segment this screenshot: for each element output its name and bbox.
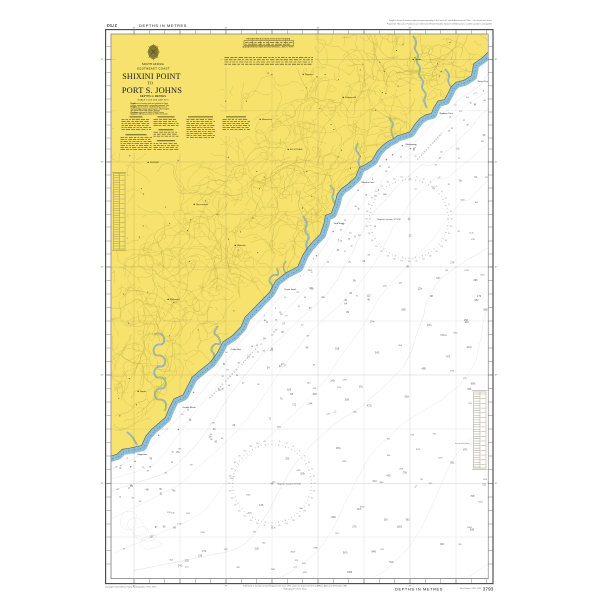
svg-text:260: 260 <box>229 491 232 493</box>
svg-text:150: 150 <box>429 256 432 258</box>
svg-text:290: 290 <box>231 469 234 471</box>
svg-text:200: 200 <box>256 523 259 525</box>
svg-text:298: 298 <box>473 279 478 282</box>
svg-text:1476: 1476 <box>464 270 468 272</box>
svg-text:708: 708 <box>470 495 475 498</box>
svg-text:2205: 2205 <box>201 532 206 534</box>
svg-text:160: 160 <box>285 523 288 525</box>
svg-text:603: 603 <box>405 395 410 398</box>
svg-text:350: 350 <box>400 177 403 179</box>
svg-text:Copyright South African Navy H: Copyright South African Navy Hydrographi… <box>105 586 157 589</box>
svg-text:629: 629 <box>481 141 484 143</box>
svg-text:340: 340 <box>393 179 396 181</box>
svg-text:50: 50 <box>441 191 443 193</box>
svg-text:32°: 32° <box>101 162 104 164</box>
svg-text:Nqadu: Nqadu <box>140 391 147 393</box>
svg-text:2701: 2701 <box>427 325 432 327</box>
svg-text:173: 173 <box>202 549 207 553</box>
svg-text:137: 137 <box>436 277 441 280</box>
svg-text:Published at Taunton, United K: Published at Taunton, United Kingdom 25t… <box>243 585 348 588</box>
svg-text:32°: 32° <box>495 59 498 61</box>
svg-text:1502: 1502 <box>478 501 484 503</box>
svg-text:30: 30 <box>292 446 294 448</box>
svg-text:Depths shown in metres reduced: Depths shown in metres reduced approxima… <box>389 19 492 22</box>
svg-text:330: 330 <box>386 182 389 184</box>
svg-text:60: 60 <box>445 197 447 199</box>
svg-text:10: 10 <box>279 441 281 443</box>
svg-text:5287: 5287 <box>342 461 346 463</box>
svg-text:THE MARITIME BUOYAGE SYSTEM IN: THE MARITIME BUOYAGE SYSTEM IN THIS AREA <box>246 38 291 41</box>
svg-text:140: 140 <box>435 251 438 253</box>
svg-text:200: 200 <box>393 259 396 261</box>
svg-text:32°: 32° <box>495 483 498 485</box>
svg-text:1106: 1106 <box>460 200 464 202</box>
svg-text:220: 220 <box>380 251 383 253</box>
svg-text:220: 220 <box>243 516 246 518</box>
svg-text:18: 18 <box>298 306 300 308</box>
svg-text:20: 20 <box>286 443 288 445</box>
svg-text:Libode: Libode <box>415 59 422 61</box>
svg-text:1027: 1027 <box>303 572 309 574</box>
svg-text:10: 10 <box>357 190 359 192</box>
svg-text:6: 6 <box>264 315 265 317</box>
svg-text:1372: 1372 <box>342 380 347 382</box>
svg-text:Shixini Point: Shixini Point <box>478 80 490 83</box>
svg-text:250: 250 <box>368 233 371 235</box>
svg-text:597: 597 <box>190 465 193 467</box>
svg-text:310: 310 <box>375 191 378 193</box>
svg-text:270: 270 <box>228 483 231 485</box>
svg-text:120: 120 <box>445 240 448 242</box>
svg-text:Umtata Mouth: Umtata Mouth <box>183 406 197 409</box>
svg-text:Rame Head: Rame Head <box>285 289 297 291</box>
svg-text:Hydrographer of the Navy: Hydrographer of the Navy <box>284 587 307 590</box>
svg-text:DEPTHS IN METRES: DEPTHS IN METRES <box>395 586 443 591</box>
svg-text:SOUTHEAST COAST: SOUTHEAST COAST <box>137 66 170 70</box>
svg-text:ELLIOTDALE: ELLIOTDALE <box>290 148 303 151</box>
svg-text:1427: 1427 <box>186 513 190 515</box>
svg-text:485: 485 <box>422 367 427 371</box>
svg-text:230: 230 <box>255 548 260 551</box>
svg-text:Projection: Mercator. Position: Projection: Mercator. Positions are refe… <box>387 22 493 25</box>
svg-text:2405: 2405 <box>453 333 458 335</box>
svg-text:1716: 1716 <box>177 524 181 526</box>
svg-text:130: 130 <box>440 246 443 248</box>
svg-text:286: 286 <box>483 308 488 311</box>
svg-text:15: 15 <box>284 297 286 299</box>
svg-text:Sources: SA Navy surveys to 19: Sources: SA Navy surveys to 1977 and ear… <box>131 113 169 116</box>
svg-text:190: 190 <box>263 525 266 527</box>
svg-text:9: 9 <box>167 429 168 431</box>
svg-text:839: 839 <box>470 529 475 532</box>
svg-text:Willowvale: Willowvale <box>170 299 181 301</box>
svg-text:109: 109 <box>287 389 292 392</box>
svg-text:32°: 32° <box>101 59 104 61</box>
svg-text:29°: 29° <box>409 585 412 587</box>
svg-text:IALA MARITIME BUOYAGE SYSTEM R: IALA MARITIME BUOYAGE SYSTEM REGION A — … <box>243 45 294 48</box>
svg-text:340: 340 <box>256 443 259 445</box>
svg-text:22: 22 <box>222 376 224 378</box>
svg-text:7079: 7079 <box>438 458 443 460</box>
svg-text:20: 20 <box>423 179 425 181</box>
svg-text:210: 210 <box>386 256 389 258</box>
svg-text:29°: 29° <box>225 585 228 587</box>
svg-text:TO: TO <box>147 80 153 85</box>
svg-text:70: 70 <box>448 204 450 206</box>
svg-text:60: 60 <box>308 462 310 464</box>
svg-text:182: 182 <box>474 298 479 302</box>
svg-text:32°: 32° <box>495 375 498 377</box>
svg-text:350: 350 <box>263 441 266 443</box>
svg-text:244: 244 <box>308 403 313 406</box>
svg-text:551: 551 <box>450 462 455 465</box>
svg-text:1298: 1298 <box>418 288 423 290</box>
svg-text:29°: 29° <box>317 585 320 587</box>
svg-text:140: 140 <box>298 516 301 518</box>
svg-text:90: 90 <box>314 483 316 485</box>
svg-text:19: 19 <box>285 316 287 318</box>
svg-text:280: 280 <box>229 476 232 478</box>
svg-text:320: 320 <box>243 451 246 453</box>
svg-text:2608: 2608 <box>442 335 446 337</box>
svg-text:160: 160 <box>422 259 425 261</box>
svg-text:235: 235 <box>185 558 190 562</box>
svg-text:32°: 32° <box>101 375 104 377</box>
svg-text:3298: 3298 <box>300 474 305 476</box>
svg-text:1183: 1183 <box>397 526 403 529</box>
svg-text:33: 33 <box>119 468 121 470</box>
svg-text:15: 15 <box>142 467 144 469</box>
svg-text:17: 17 <box>344 251 346 253</box>
svg-text:230: 230 <box>375 246 378 248</box>
svg-text:190: 190 <box>400 261 403 263</box>
svg-text:362: 362 <box>459 180 463 182</box>
svg-text:40: 40 <box>299 451 301 453</box>
svg-text:1667: 1667 <box>480 275 484 277</box>
svg-text:4004: 4004 <box>248 513 252 515</box>
svg-text:320: 320 <box>380 186 383 188</box>
svg-text:1532: 1532 <box>277 427 282 429</box>
svg-text:290: 290 <box>368 204 371 206</box>
svg-text:SOUTH AFRICA: SOUTH AFRICA <box>142 63 164 66</box>
svg-text:4353: 4353 <box>336 448 341 450</box>
svg-text:1296: 1296 <box>337 387 341 389</box>
svg-text:171: 171 <box>292 404 297 407</box>
svg-text:112: 112 <box>367 295 372 298</box>
svg-text:DEPTHS IN METRES: DEPTHS IN METRES <box>139 23 187 28</box>
svg-text:230: 230 <box>238 511 241 513</box>
svg-text:38: 38 <box>467 124 469 126</box>
svg-text:210: 210 <box>249 520 252 522</box>
svg-text:173: 173 <box>477 294 482 298</box>
svg-text:242: 242 <box>375 352 380 355</box>
svg-text:6887: 6887 <box>314 548 318 550</box>
svg-text:373: 373 <box>352 525 357 528</box>
svg-text:Magnetic Variation 26°30′W: Magnetic Variation 26°30′W <box>377 218 400 221</box>
svg-text:Viedgesville: Viedgesville <box>345 97 357 99</box>
svg-text:282: 282 <box>212 422 215 424</box>
svg-text:32°: 32° <box>101 267 104 269</box>
svg-text:300: 300 <box>371 197 374 199</box>
svg-text:871: 871 <box>463 447 468 451</box>
svg-text:Nqabara Point: Nqabara Point <box>440 112 454 115</box>
svg-text:3181: 3181 <box>416 449 420 451</box>
svg-text:40: 40 <box>271 348 273 350</box>
svg-text:145: 145 <box>259 503 264 507</box>
svg-text:120: 120 <box>308 504 311 506</box>
svg-text:25: 25 <box>351 245 353 247</box>
svg-text:13: 13 <box>149 457 151 459</box>
svg-text:Xora Mouth: Xora Mouth <box>334 222 346 225</box>
svg-text:12: 12 <box>344 220 346 222</box>
svg-text:7898: 7898 <box>271 569 275 571</box>
svg-text:1597: 1597 <box>246 495 251 497</box>
svg-text:29°: 29° <box>317 28 320 30</box>
svg-text:110: 110 <box>448 233 451 235</box>
svg-text:3793: 3793 <box>106 22 117 28</box>
svg-text:5876: 5876 <box>343 552 348 554</box>
svg-text:188: 188 <box>401 309 406 312</box>
svg-text:74: 74 <box>311 272 313 274</box>
svg-text:180: 180 <box>271 526 274 528</box>
svg-text:310: 310 <box>238 456 241 458</box>
svg-text:416: 416 <box>386 473 391 477</box>
svg-text:16: 16 <box>349 232 351 234</box>
svg-text:110: 110 <box>311 498 314 500</box>
svg-text:260: 260 <box>366 226 369 228</box>
svg-text:29°: 29° <box>133 585 136 587</box>
svg-text:19: 19 <box>388 167 390 169</box>
svg-text:563: 563 <box>406 519 411 522</box>
svg-text:DEPTHS in METRES: DEPTHS in METRES <box>140 95 166 98</box>
svg-text:32°: 32° <box>495 267 498 269</box>
svg-text:Magnetic Variation 26°45′W: Magnetic Variation 26°45′W <box>278 482 301 485</box>
svg-text:280: 280 <box>366 211 369 213</box>
svg-text:240: 240 <box>234 504 237 506</box>
svg-text:846: 846 <box>372 550 377 554</box>
svg-text:90: 90 <box>451 219 453 221</box>
svg-text:1749: 1749 <box>471 239 475 241</box>
svg-text:170: 170 <box>278 525 281 527</box>
svg-text:32°: 32° <box>101 483 104 485</box>
svg-text:130: 130 <box>303 511 306 513</box>
svg-text:270: 270 <box>365 219 368 221</box>
svg-text:309: 309 <box>345 398 350 401</box>
svg-text:70: 70 <box>311 469 313 471</box>
svg-text:29°: 29° <box>409 28 412 30</box>
svg-text:1401: 1401 <box>330 380 335 382</box>
svg-text:9: 9 <box>473 94 474 96</box>
svg-text:191: 191 <box>456 148 460 150</box>
svg-text:18: 18 <box>365 195 367 197</box>
svg-text:8047: 8047 <box>291 552 296 554</box>
svg-text:180: 180 <box>408 261 411 263</box>
svg-text:23: 23 <box>279 312 281 314</box>
svg-text:Mbewuleni: Mbewuleni <box>262 119 272 121</box>
svg-text:199: 199 <box>198 555 203 558</box>
svg-text:20: 20 <box>172 451 174 453</box>
svg-text:330: 330 <box>249 446 252 448</box>
svg-text:New Editions 1982, 1985: New Editions 1982, 1985 <box>460 587 481 590</box>
svg-text:Mendwana: Mendwana <box>406 144 417 146</box>
svg-text:KENTANI: KENTANI <box>150 161 159 164</box>
svg-text:731: 731 <box>210 439 213 441</box>
svg-text:29°: 29° <box>225 28 228 30</box>
svg-text:Mngazana: Mngazana <box>138 454 149 456</box>
svg-text:170: 170 <box>415 261 418 263</box>
svg-text:108: 108 <box>335 348 340 351</box>
svg-text:40: 40 <box>436 186 438 188</box>
svg-text:80: 80 <box>450 211 452 213</box>
svg-text:14: 14 <box>449 117 451 119</box>
svg-text:10: 10 <box>416 177 418 179</box>
svg-text:SCALE 1:100 000 (LAT 32°): SCALE 1:100 000 (LAT 32°) <box>138 98 169 101</box>
svg-text:250: 250 <box>231 498 234 500</box>
svg-text:1203: 1203 <box>383 286 387 288</box>
svg-text:4421: 4421 <box>297 470 301 472</box>
svg-text:Coffee Bay: Coffee Bay <box>231 349 242 351</box>
svg-text:472: 472 <box>446 356 451 359</box>
svg-text:30: 30 <box>429 182 431 184</box>
svg-text:Ngcwanguba: Ngcwanguba <box>196 204 209 206</box>
svg-text:80: 80 <box>313 476 315 478</box>
svg-text:Ngqeleni: Ngqeleni <box>305 74 314 76</box>
svg-text:12: 12 <box>400 156 402 158</box>
svg-text:8994: 8994 <box>471 383 476 385</box>
svg-text:218: 218 <box>313 393 318 396</box>
svg-text:34: 34 <box>304 297 306 299</box>
svg-text:1088: 1088 <box>347 572 353 574</box>
svg-text:47: 47 <box>439 158 441 160</box>
svg-text:8: 8 <box>120 466 121 468</box>
svg-text:823: 823 <box>475 202 478 204</box>
svg-text:Mqanduli: Mqanduli <box>237 245 246 247</box>
svg-text:ocean data buoy: ocean data buoy <box>455 442 471 445</box>
svg-text:PORT S. JOHNS: PORT S. JOHNS <box>122 86 182 95</box>
svg-text:910: 910 <box>373 480 378 483</box>
svg-text:1144: 1144 <box>469 233 473 235</box>
svg-text:32°: 32° <box>495 162 498 164</box>
svg-text:29°: 29° <box>133 28 136 30</box>
svg-text:3793: 3793 <box>483 586 494 592</box>
svg-text:Mbashe Point: Mbashe Point <box>362 181 375 184</box>
svg-text:240: 240 <box>371 240 374 242</box>
svg-text:300: 300 <box>234 462 237 464</box>
svg-text:50: 50 <box>304 456 306 458</box>
svg-text:100: 100 <box>313 491 316 493</box>
svg-text:100: 100 <box>450 226 453 228</box>
svg-text:150: 150 <box>292 520 295 522</box>
